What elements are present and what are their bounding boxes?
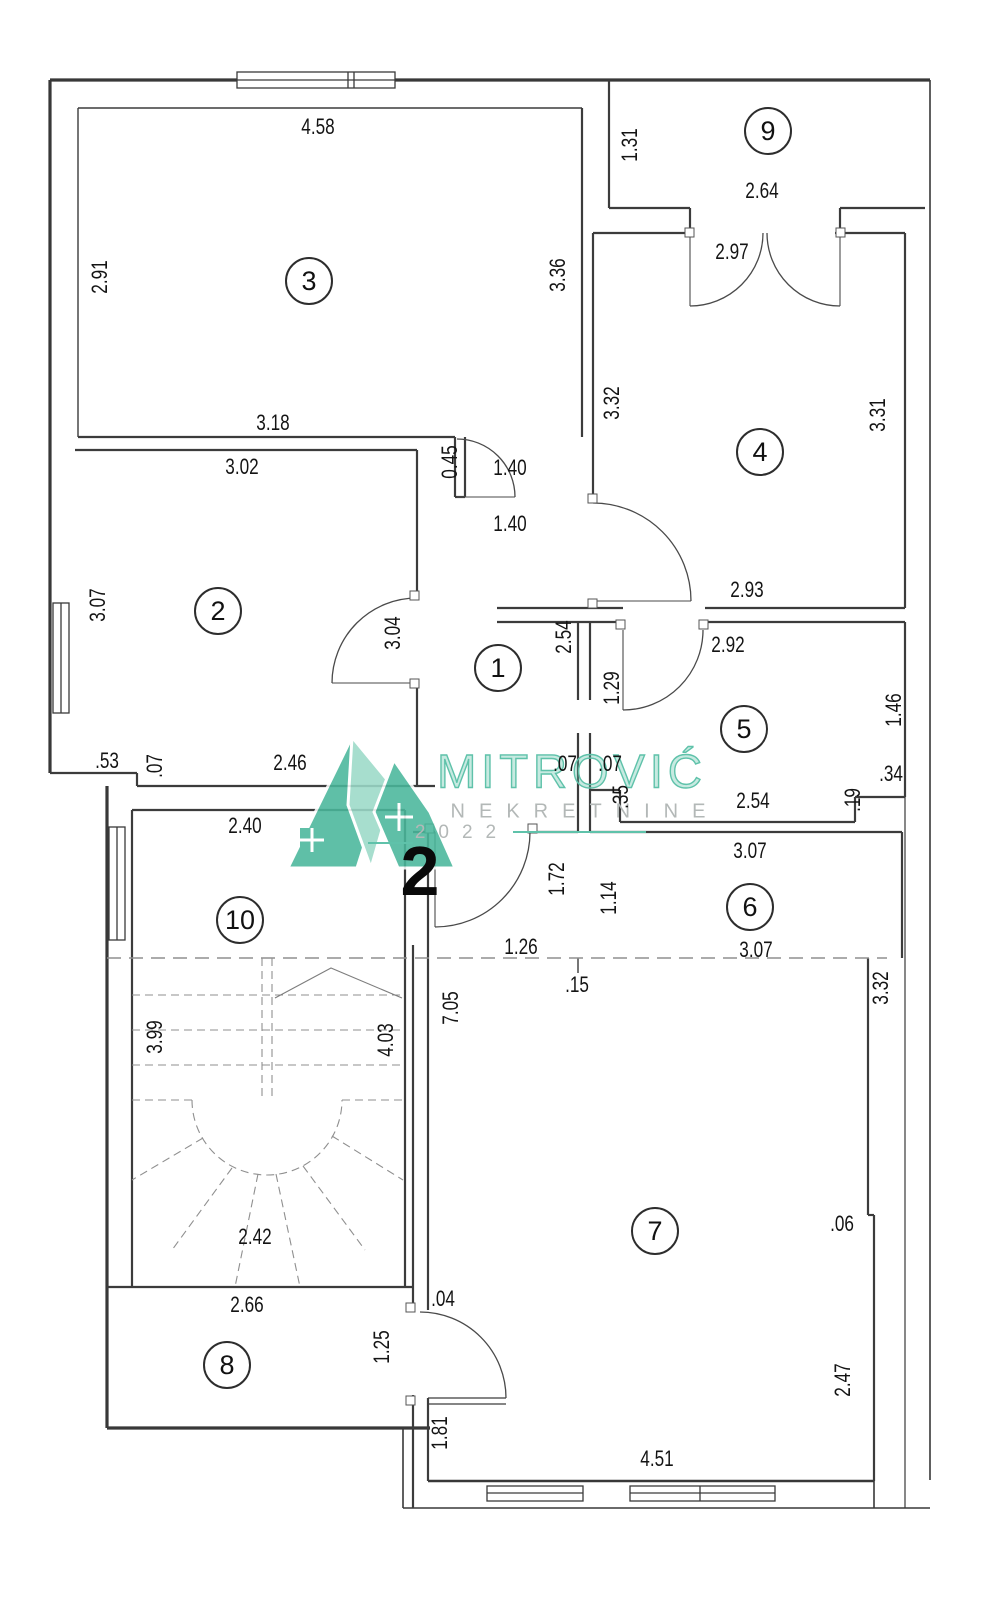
room-number-label: 7 (647, 1216, 662, 1247)
dimension-label: .19 (842, 788, 864, 812)
dimension-label: .07 (598, 753, 622, 775)
apartment-number: 2 (401, 831, 440, 911)
dimension-label: 4.58 (301, 116, 334, 138)
dimension-label: 2.46 (273, 752, 306, 774)
room-number-label: 1 (490, 653, 505, 684)
room-number-3: 3 (285, 257, 333, 305)
dimension-label: 2.97 (715, 241, 748, 263)
dimension-label: .53 (95, 750, 119, 772)
dimension-label: 1.25 (371, 1330, 393, 1363)
dimension-label: 3.31 (867, 398, 889, 431)
dimension-label: .15 (565, 974, 589, 996)
room-number-8: 8 (203, 1341, 251, 1389)
room-number-label: 6 (742, 892, 757, 923)
dimension-label: 1.40 (493, 513, 526, 535)
dimension-label: 4.03 (375, 1023, 397, 1056)
room-number-label: 3 (301, 266, 316, 297)
dimension-label: 0.45 (439, 445, 461, 478)
dimension-label: .06 (830, 1213, 854, 1235)
dimension-label: 1.40 (493, 457, 526, 479)
dimension-label: .07 (553, 753, 577, 775)
room-number-6: 6 (726, 883, 774, 931)
dimension-label: 2.64 (745, 180, 778, 202)
room-number-label: 2 (210, 596, 225, 627)
dimension-label: 1.14 (598, 881, 620, 914)
dimension-label: 2.54 (553, 620, 575, 653)
dimension-label: 2.42 (238, 1226, 271, 1248)
room-number-1: 1 (474, 644, 522, 692)
room-number-10: 10 (216, 896, 264, 944)
room-number-4: 4 (736, 428, 784, 476)
dimension-label: 1.72 (546, 862, 568, 895)
dimension-label: 1.31 (619, 128, 641, 161)
dimension-label: 7.05 (440, 991, 462, 1024)
dimension-label: 1.46 (883, 693, 905, 726)
room-number-9: 9 (744, 107, 792, 155)
dimension-label: 2.92 (711, 634, 744, 656)
dimension-label: 1.81 (429, 1416, 451, 1449)
dimension-label: 3.07 (739, 939, 772, 961)
dimension-label: 4.51 (640, 1448, 673, 1470)
dimension-label: .04 (431, 1288, 455, 1310)
dimension-label: .34 (879, 763, 903, 785)
room-number-label: 4 (752, 437, 767, 468)
dimension-label: 3.02 (225, 456, 258, 478)
dimension-label: 3.36 (547, 258, 569, 291)
dimension-label: 2.47 (832, 1363, 854, 1396)
dimension-label: 3.32 (601, 386, 623, 419)
room-number-label: 9 (760, 116, 775, 147)
room-number-2: 2 (194, 587, 242, 635)
dimension-label: 2.93 (730, 579, 763, 601)
dimension-label: 1.26 (504, 936, 537, 958)
dimension-label: 3.04 (382, 616, 404, 649)
dimension-label: 2.66 (230, 1294, 263, 1316)
dimension-label: 3.07 (733, 840, 766, 862)
room-number-label: 5 (736, 714, 751, 745)
room-number-label: 8 (219, 1350, 234, 1381)
watermark-subtitle: NEKRETNINE (451, 801, 720, 824)
dimension-label: .07 (144, 754, 166, 778)
dimension-label: 3.18 (256, 412, 289, 434)
watermark-underline (513, 831, 646, 833)
dimension-label: 3.32 (870, 971, 892, 1004)
dimension-label: 3.07 (87, 588, 109, 621)
room-number-label: 10 (225, 905, 255, 936)
dimension-label: 3.99 (144, 1020, 166, 1053)
dimension-label: 2.54 (736, 790, 769, 812)
dimension-label: 2.91 (89, 260, 111, 293)
floor-plan: MITROVIĆ NEKRETNINE 2022 2 1 2 3 4 5 6 7… (0, 0, 982, 1600)
dimension-label: 2.40 (228, 815, 261, 837)
room-number-5: 5 (720, 705, 768, 753)
room-number-7: 7 (631, 1207, 679, 1255)
dimension-label: 1.29 (601, 671, 623, 704)
dimension-label: .35 (610, 785, 632, 809)
